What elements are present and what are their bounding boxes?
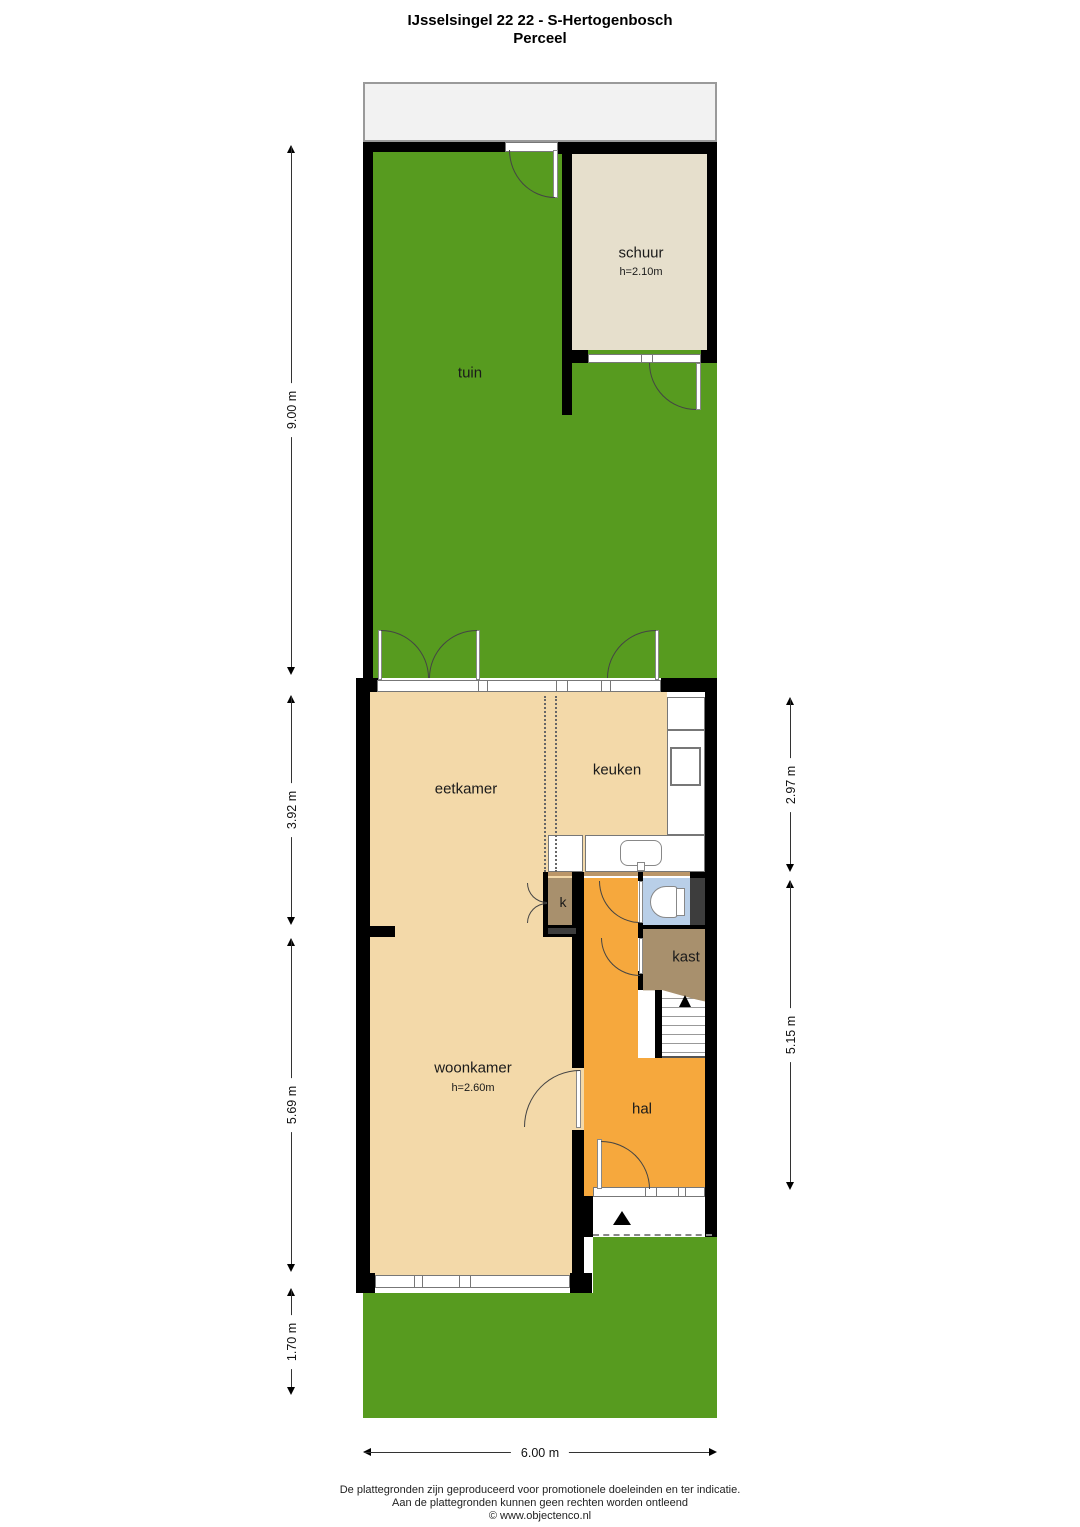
- stairs-bottom-line: [662, 1056, 708, 1058]
- dimension-label: 5.15 m: [784, 1008, 798, 1062]
- window-mullion: [601, 680, 611, 692]
- wall: [356, 678, 370, 1293]
- living-room-label: woonkamer: [434, 1060, 512, 1077]
- dimension-392: 3.92 m: [287, 695, 296, 925]
- room-separator-dotted: [555, 696, 557, 872]
- kitchen-cabinet: [548, 835, 583, 872]
- hall-label: hal: [632, 1101, 652, 1118]
- sink-tap: [637, 862, 645, 871]
- kitchen-label: keuken: [593, 762, 641, 779]
- window-mullion: [414, 1275, 423, 1288]
- shed-label: schuur: [618, 245, 663, 262]
- dimension-9m: 9.00 m: [287, 145, 296, 675]
- garden-front: [363, 1293, 717, 1418]
- wall: [707, 142, 717, 363]
- low-cabinet: [548, 928, 576, 934]
- wall: [643, 925, 712, 929]
- footer-disclaimer: De plattegronden zijn geproduceerd voor …: [0, 1484, 1080, 1523]
- title-address: IJsselsingel 22 22 - S-Hertogenbosch: [0, 12, 1080, 30]
- arrow-down-icon: [287, 1264, 295, 1272]
- stairs-up-arrow-icon: [679, 995, 691, 1007]
- back-window-wall: [377, 680, 661, 692]
- dimension-label: 3.92 m: [285, 783, 299, 837]
- dimension-label: 6.00 m: [511, 1446, 569, 1460]
- wall: [701, 350, 707, 363]
- closet-kast: [643, 929, 712, 1003]
- wall: [570, 1273, 592, 1293]
- window-mullion: [678, 1187, 686, 1197]
- wall: [558, 142, 717, 154]
- wall: [363, 142, 505, 152]
- shed-door-leaf: [696, 363, 701, 410]
- page-title: IJsselsingel 22 22 - S-Hertogenbosch Per…: [0, 12, 1080, 48]
- footer-copyright: © www.objectenco.nl: [0, 1510, 1080, 1523]
- living-room-height-label: h=2.60m: [451, 1082, 494, 1094]
- arrow-down-icon: [786, 864, 794, 872]
- porch-edge-dashed: [593, 1234, 712, 1236]
- wall: [690, 872, 712, 878]
- wall: [572, 350, 588, 363]
- wall: [356, 1273, 375, 1293]
- arrow-down-icon: [287, 667, 295, 675]
- oven-appliance: [670, 747, 701, 786]
- window-mullion: [641, 354, 653, 363]
- window-mullion: [556, 680, 568, 692]
- title-subtitle: Perceel: [0, 30, 1080, 48]
- dining-room-label: eetkamer: [435, 781, 498, 798]
- toilet-fixture: [650, 886, 678, 918]
- pavement: [363, 82, 717, 142]
- k-label: k: [560, 894, 567, 910]
- porch: [593, 1197, 705, 1235]
- entrance-arrow-icon: [613, 1211, 631, 1225]
- dimension-170: 1.70 m: [287, 1288, 296, 1395]
- dimension-label: 2.97 m: [784, 757, 798, 811]
- dimension-label: 9.00 m: [285, 383, 299, 437]
- arrow-right-icon: [709, 1448, 717, 1456]
- garden-label: tuin: [458, 365, 482, 382]
- floorplan-canvas: IJsselsingel 22 22 - S-Hertogenbosch Per…: [0, 0, 1080, 1527]
- shed-height-label: h=2.10m: [619, 266, 662, 278]
- footer-line2: Aan de plattegronden kunnen geen rechten…: [0, 1497, 1080, 1510]
- toilet-tank: [676, 888, 685, 916]
- counter-divider: [667, 729, 705, 731]
- wall: [370, 926, 395, 937]
- dimension-label: 5.69 m: [285, 1078, 299, 1132]
- dimension-6m: 6.00 m: [363, 1448, 717, 1457]
- room-separator-dotted: [544, 696, 546, 872]
- dimension-515: 5.15 m: [786, 880, 795, 1190]
- arrow-down-icon: [786, 1182, 794, 1190]
- wall: [363, 142, 373, 678]
- dimension-label: 1.70 m: [285, 1314, 299, 1368]
- wall: [661, 678, 717, 692]
- dimension-297: 2.97 m: [786, 697, 795, 872]
- window-mullion: [478, 680, 488, 692]
- footer-line1: De plattegronden zijn geproduceerd voor …: [0, 1484, 1080, 1497]
- window-mullion: [459, 1275, 471, 1288]
- living-room-floor: [370, 692, 572, 1275]
- wall: [562, 142, 572, 415]
- dimension-569: 5.69 m: [287, 938, 296, 1272]
- arrow-down-icon: [287, 917, 295, 925]
- wall: [583, 1196, 593, 1237]
- wall: [655, 990, 662, 1058]
- kast-label: kast: [672, 949, 700, 966]
- wall: [705, 692, 717, 1237]
- arrow-down-icon: [287, 1387, 295, 1395]
- front-window-wall: [375, 1275, 570, 1288]
